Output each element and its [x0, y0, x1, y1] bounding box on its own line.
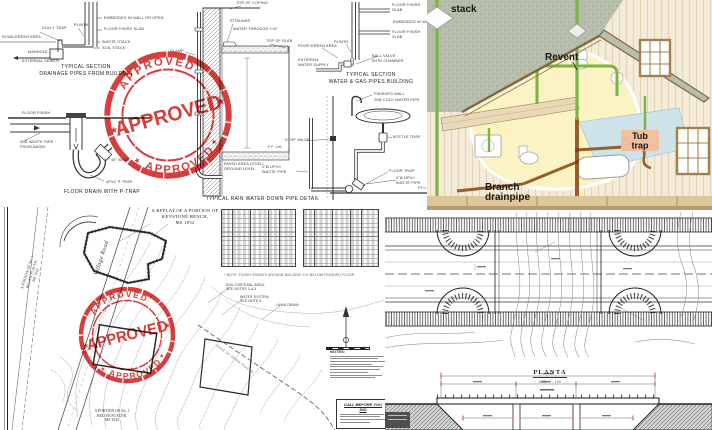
- notes-block: NOTES:: [330, 349, 388, 380]
- label-branch-2: drainpipe: [485, 192, 530, 203]
- label-bottle-trap: BOTTLE TRAP: [393, 135, 421, 140]
- label-fflvl: F.F. LVL: [268, 145, 283, 150]
- label-waste-w: 2"Ø UPVC WASTE PIPE: [262, 165, 287, 174]
- call-box-title: CALL BEFORE YOU DIG: [340, 402, 386, 412]
- label-ffs-b2: FLOOR FINISH SLAB: [392, 30, 420, 39]
- foundation: [427, 196, 712, 210]
- label-roof-green-b: ROOF/GREEN AREA: [298, 44, 337, 49]
- label-revent: Revent: [545, 52, 579, 63]
- label-water-through: WATER THROUGH 2'x2': [233, 27, 278, 32]
- bridge-linework: [385, 212, 712, 430]
- note-text-line: [330, 369, 380, 370]
- label-ball-valve: BALL VALVE WITH CHAMBER: [372, 54, 404, 63]
- drainage-section-drawing: [0, 2, 102, 60]
- note-text-line: [330, 361, 385, 362]
- drawing-collage: ROAD/GREEN AREA GULLY TRAP PLINTH MANHOL…: [0, 0, 712, 430]
- note-text-line: [330, 375, 382, 376]
- survey-table-block-2: [303, 209, 379, 267]
- soil-disposal-label: SOIL DISPOSAL AREA, SEE NOTES 3 & 4: [226, 283, 265, 291]
- label-ffs-b1: FLOOR FINISH SLAB: [392, 3, 420, 12]
- label-stack: stack: [451, 4, 477, 15]
- call-box-text-line: [340, 416, 380, 417]
- site-plan-sheet: A REPLAT OF A PORTION OF KEYSTONE BENCH,…: [0, 207, 390, 430]
- label-floor-finish: FLOOR FINISH: [22, 111, 50, 116]
- survey-table-block-1: [221, 209, 296, 267]
- label-manhole: MANHOLE: [28, 50, 48, 55]
- label-strainer: STRAINER: [230, 19, 250, 24]
- table-divider: [314, 210, 315, 266]
- notes-title: NOTES:: [330, 349, 388, 354]
- table-divider: [361, 210, 362, 266]
- call-before-you-dig-box: CALL BEFORE YOU DIG: [336, 399, 390, 429]
- building-footprint: [60, 216, 166, 283]
- label-tub-trap-1: Tub: [632, 131, 648, 141]
- label-finished-wall: FINISHED WALL: [374, 92, 405, 97]
- table-divider: [279, 210, 280, 266]
- caption-floor-drain: FLOOR DRAIN WITH P-TRAP: [42, 189, 162, 196]
- label-floor-trap: FLOOR TRAP: [389, 169, 415, 174]
- bridge-plan-view: [385, 212, 712, 357]
- call-box-text-line: [340, 422, 370, 423]
- label-top-slab: TOP OF SLAB: [266, 39, 292, 44]
- label-ext-sewer: EXTERNAL SEWER: [22, 59, 59, 64]
- table-divider: [332, 210, 333, 266]
- label-plinth-a: PLINTH: [74, 23, 88, 28]
- label-waste-stack: WASTE STACK: [102, 40, 130, 45]
- bridge-drawing-sheet: PLANTA ESC. 1 : 100: [385, 212, 712, 430]
- table-note: * NOTE: FINISH GRADES AROUND BUILDING 0.…: [224, 273, 354, 277]
- house-artwork: stack Revent Tub trap Branch drainpipe: [427, 0, 712, 210]
- lawn-drain-label: LAWN DRAIN: [276, 303, 299, 307]
- call-box-text-line: [340, 419, 385, 420]
- house-cutaway-illustration: stack Revent Tub trap Branch drainpipe: [427, 0, 712, 210]
- table-divider: [268, 210, 269, 266]
- planta-caption: PLANTA ESC. 1 : 100: [523, 361, 577, 384]
- north-arrow: [343, 306, 349, 347]
- plumbing-details-sheet: ROAD/GREEN AREA GULLY TRAP PLINTH MANHOL…: [0, 0, 430, 207]
- label-tub-trap-2: trap: [631, 141, 649, 151]
- label-gully-trap: GULLY TRAP: [42, 26, 67, 31]
- label-coping: TOP OF COPING: [236, 1, 268, 6]
- label-road-green: ROAD/GREEN AREA: [2, 35, 41, 40]
- caption-rainwater: TYPICAL RAIN WATER DOWN PIPE DETAIL: [190, 196, 335, 203]
- note-text-line: [330, 366, 383, 367]
- label-stop-valve: STOP VALVE: [285, 138, 309, 143]
- note-text-line: [330, 372, 368, 373]
- label-cold-pipe: 20Ø COLD WATER PIPE: [374, 98, 420, 103]
- call-box-text-line: [340, 414, 384, 415]
- sheet-border-outer: [4, 207, 5, 430]
- wing-walls: [437, 230, 661, 314]
- note-text-line: [330, 377, 375, 378]
- parcel-bottom-label: A PORTION OF No. 1 BELOW PLACER, MS 1042: [72, 409, 152, 423]
- note-text-line: [330, 358, 378, 359]
- table-divider: [232, 210, 233, 266]
- surveyor-logo-box: [385, 412, 410, 428]
- label-waste-e: 2"Ø UPVC WASTE PIPE: [396, 176, 421, 185]
- table-divider: [350, 210, 351, 266]
- label-ext-water: EXTERNAL WATER SUPPLY: [298, 58, 329, 67]
- note-text-line: [330, 364, 372, 365]
- caption-watergas: TYPICAL SECTION WATER & GAS PIPES BUILDI…: [316, 72, 426, 85]
- planta-scale: ESC. 1 : 100: [523, 380, 577, 384]
- label-embedded-a: EMBEDDED IN WALL OR OPEN: [104, 16, 164, 21]
- sheet-border: [7, 207, 8, 430]
- water-system-label: WATER SYSTEM, SEE NOTE 5: [240, 295, 270, 303]
- label-soil-stack: SOIL STACK: [102, 46, 125, 51]
- label-embedded-b: EMBEDDED IN WALL: [393, 20, 430, 25]
- planta-label: PLANTA: [533, 369, 566, 378]
- table-divider: [250, 210, 251, 266]
- note-text-line: [330, 356, 384, 357]
- label-ffs-a: FLOOR FINISH SLAB: [104, 27, 144, 32]
- label-waste-basin: 40Ø WASTE PIPE FROM BASIN: [20, 140, 53, 149]
- plan-dimension-marks: [425, 242, 643, 320]
